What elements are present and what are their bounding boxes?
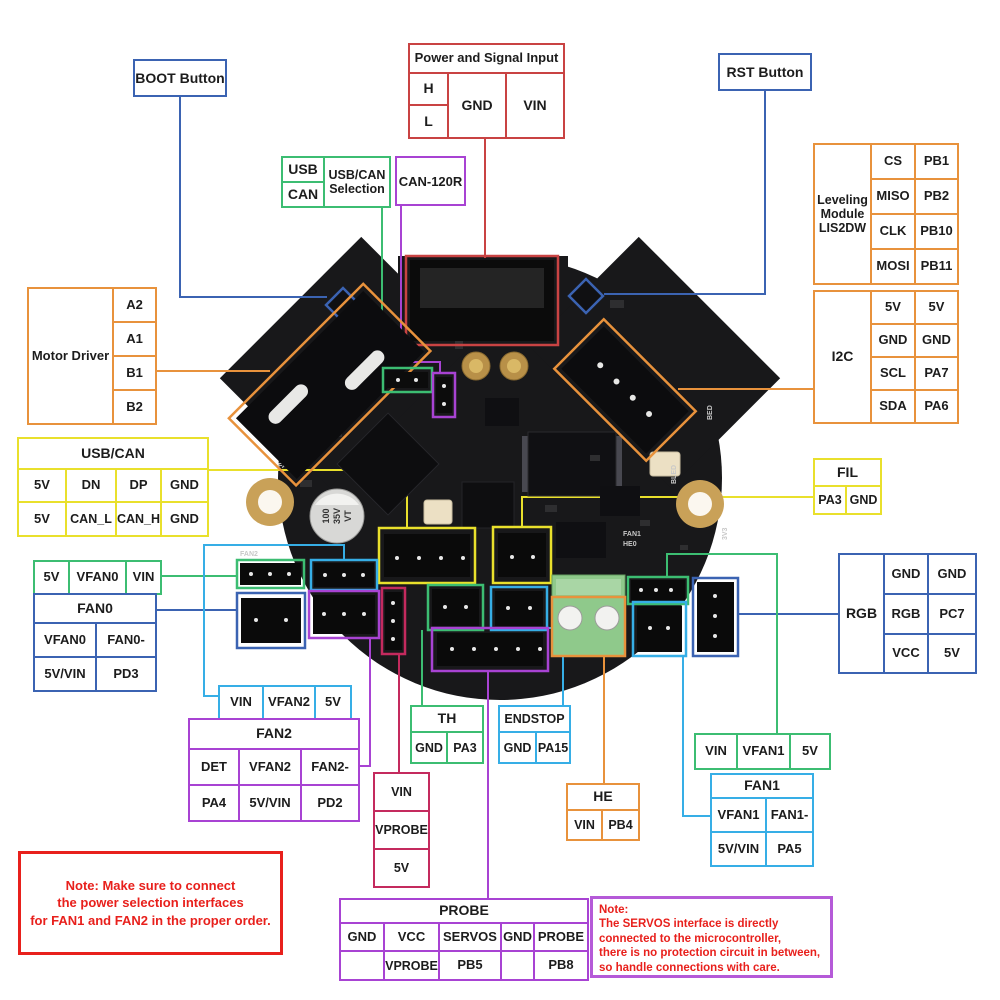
table-cell: DP [116,469,161,502]
probe-table: PROBE GND VCC SERVOS GND PROBE VPROBE PB… [339,898,589,981]
table-title: Leveling Module LIS2DW [814,144,871,284]
table-cell: PA4 [189,785,239,821]
silk-bled: BLED [671,465,678,484]
table-cell: GND [884,554,928,594]
table-cell: GND [161,502,208,536]
table-cell: CAN_L [66,502,116,536]
can120r-label: CAN-120R [395,156,466,206]
silk-bed: BED [707,405,714,420]
table-title: ENDSTOP [499,706,570,732]
table-cell: VFAN2 [239,749,301,785]
rgb-table: RGB GND GND RGB PC7 VCC 5V [838,553,977,674]
power-input-table: Power and Signal Input H L GND VIN [408,43,565,139]
endstop-table: ENDSTOP GND PA15 [498,705,571,764]
table-cell: GND [411,732,447,763]
table-cell: PA5 [766,832,813,866]
table-cell: VFAN0 [69,561,126,594]
table-cell: VIN [567,810,602,840]
table-cell: PA6 [915,390,958,423]
leveling-module-table: Leveling Module LIS2DW CS PB1 MISO PB2 C… [813,143,959,285]
table-cell: VFAN2 [263,686,315,719]
table-title: RGB [839,554,884,673]
table-cell: VCC [384,923,439,951]
table-cell: VFAN1 [737,734,790,769]
table-cell: VIN [219,686,263,719]
table-cell: GND [340,923,384,951]
table-cell: GND [871,324,915,357]
silk-3v3: 3V3 [722,527,729,540]
table-cell: FAN2- [301,749,359,785]
usbcan-selection-table: USB CAN USB/CAN Selection [281,156,391,208]
table-cell: USB/CAN Selection [324,157,390,207]
table-cell: 5V [374,849,429,887]
svg-text:100: 100 [321,508,331,523]
table-cell: FAN1- [766,798,813,832]
table-cell: PB4 [602,810,639,840]
svg-text:VT: VT [343,510,353,522]
table-cell: PA3 [814,486,846,514]
chip [485,398,519,426]
table-title: HE [567,784,639,810]
table-cell: CS [871,144,915,179]
table-cell: VPROBE [374,811,429,849]
table-cell: PB2 [915,179,958,214]
table-cell: 5V/VIN [34,657,96,691]
motor-driver-table: Motor Driver A2 A1 B1 B2 [27,287,157,425]
table-cell: PA15 [536,732,570,763]
table-title: FAN2 [189,719,359,749]
table-cell: MISO [871,179,915,214]
table-cell: B1 [113,356,156,390]
table-cell: VIN [695,734,737,769]
table-cell: USB [282,157,324,182]
table-cell: PA7 [915,357,958,390]
table-title: TH [411,706,483,732]
table-cell: PC7 [928,594,976,634]
pinout-diagram: 100 35V VT FAN0 FAN2 FAN1 HE0 BLED BED 3… [0,0,1000,1000]
table-cell: DN [66,469,116,502]
table-cell: FAN0- [96,623,156,657]
table-cell: L [409,105,448,138]
table-cell: PD2 [301,785,359,821]
table-cell: CAN [282,182,324,207]
table-title: USB/CAN [18,438,208,469]
table-cell: PB1 [915,144,958,179]
table-cell: VIN [374,773,429,811]
chip [556,522,606,558]
table-cell: GND [161,469,208,502]
table-cell: DET [189,749,239,785]
fan0-select-table: 5V VFAN0 VIN [33,560,162,595]
table-cell: RGB [884,594,928,634]
table-cell: 5V [34,561,69,594]
table-cell: VPROBE [384,951,439,980]
table-cell: A2 [113,288,156,322]
table-cell: 5V [18,502,66,536]
probe-select-table: VIN VPROBE 5V [373,772,430,888]
table-title: Motor Driver [28,288,113,424]
silk-fan1: FAN1 [623,531,641,538]
table-cell: VFAN1 [711,798,766,832]
fan2-table: FAN2 DET VFAN2 FAN2- PA4 5V/VIN PD2 [188,718,360,822]
chip [600,486,640,516]
fan1-table: FAN1 VFAN1 FAN1- 5V/VIN PA5 [710,773,814,867]
table-cell: SDA [871,390,915,423]
table-cell: VFAN0 [34,623,96,657]
svg-text:35V: 35V [332,508,342,524]
table-cell: VCC [884,634,928,673]
he-table: HE VIN PB4 [566,783,640,841]
table-title: FIL [814,459,881,486]
table-cell: PD3 [96,657,156,691]
table-cell: 5V [871,291,915,324]
table-cell: GND [928,554,976,594]
table-cell: 5V/VIN [711,832,766,866]
servos-warning-note: Note: The SERVOS interface is directly c… [590,896,833,978]
i2c-table: I2C 5V 5V GND GND SCL PA7 SDA PA6 [813,290,959,424]
table-cell: CLK [871,214,915,249]
table-cell: 5V [915,291,958,324]
table-title: PROBE [340,899,588,923]
table-cell: GND [448,73,506,138]
button-small [424,500,452,524]
th-table: TH GND PA3 [410,705,484,764]
table-cell: 5V [928,634,976,673]
silk-he0: HE0 [623,541,637,548]
table-cell: 5V [18,469,66,502]
table-cell: GND [499,732,536,763]
table-cell: GND [501,923,534,951]
table-cell: 5V [790,734,830,769]
table-cell: PB10 [915,214,958,249]
table-cell: GND [846,486,881,514]
capacitor: 100 35V VT [310,489,364,543]
table-cell: SCL [871,357,915,390]
chip [462,482,514,528]
table-cell: VIN [506,73,564,138]
table-title: Power and Signal Input [409,44,564,73]
table-cell: PB11 [915,249,958,284]
table-cell: 5V/VIN [239,785,301,821]
table-cell: VIN [126,561,161,594]
usbcan-table: USB/CAN 5V DN DP GND 5V CAN_L CAN_H GND [17,437,209,537]
fan0-table: FAN0 VFAN0 FAN0- 5V/VIN PD3 [33,593,157,692]
table-cell: PB5 [439,951,501,980]
table-title: I2C [814,291,871,423]
rst-button-label: RST Button [718,53,812,91]
table-cell [501,951,534,980]
boot-button-label: BOOT Button [133,59,227,97]
table-cell [340,951,384,980]
table-cell: H [409,73,448,105]
mcu-pins [522,436,528,492]
table-cell: PA3 [447,732,483,763]
table-cell: SERVOS [439,923,501,951]
table-cell: PB8 [534,951,588,980]
silk-fan2: FAN2 [240,551,258,558]
fan-order-note: Note: Make sure to connect the power sel… [18,851,283,955]
fan1-select-table: VIN VFAN1 5V [694,733,831,770]
table-cell: B2 [113,390,156,424]
fan2-select-table: VIN VFAN2 5V [218,685,352,720]
table-cell: GND [915,324,958,357]
table-cell: CAN_H [116,502,161,536]
table-cell: A1 [113,322,156,356]
table-cell: 5V [315,686,351,719]
table-cell: MOSI [871,249,915,284]
table-cell: PROBE [534,923,588,951]
table-title: FAN1 [711,774,813,798]
table-title: FAN0 [34,594,156,623]
fil-table: FIL PA3 GND [813,458,882,515]
